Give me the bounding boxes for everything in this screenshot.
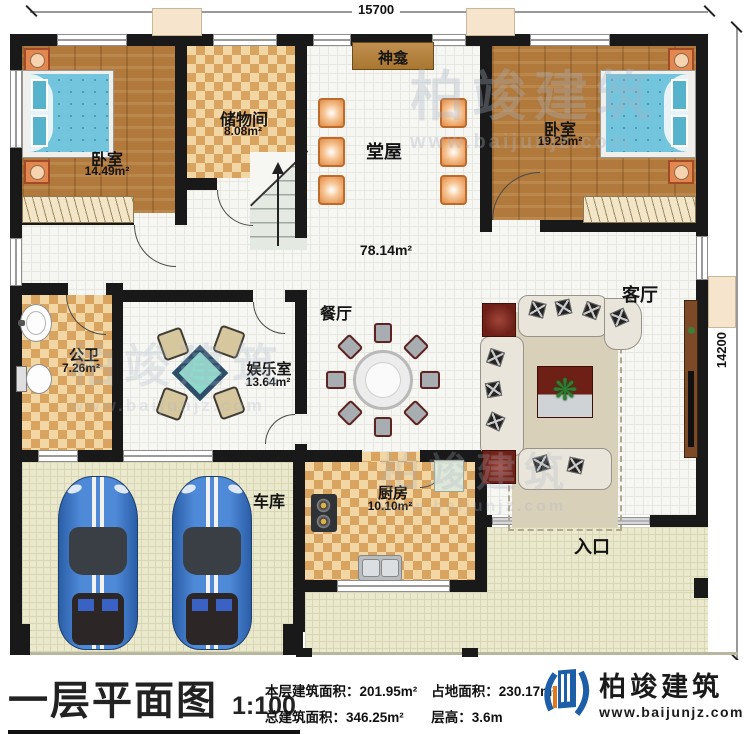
tv-icon xyxy=(688,371,694,447)
wall-storage-bottom xyxy=(187,178,217,190)
window-bedroom2-top xyxy=(530,34,610,46)
window-seat-right xyxy=(708,276,736,328)
car-icon xyxy=(172,476,252,650)
window-gameroom-bottom xyxy=(123,450,213,462)
nightstand-icon xyxy=(668,48,694,72)
hall-chair-icon xyxy=(318,137,345,167)
kitchen-sink-icon xyxy=(358,555,402,581)
room-area: 8.08m² xyxy=(224,124,262,138)
wardrobe-icon xyxy=(583,196,696,223)
bay-box-top-right xyxy=(466,8,515,36)
terrace-front-edge xyxy=(22,652,738,655)
hall-chair-icon xyxy=(440,98,467,128)
garage-post-left xyxy=(10,624,30,655)
side-table-icon xyxy=(482,303,516,337)
bay-box-top-left xyxy=(152,8,202,36)
room-label: 车库 xyxy=(253,488,285,512)
room-label: 入口 xyxy=(574,533,610,559)
stat-floor-height: 层高：3.6m xyxy=(431,706,556,726)
side-table-icon xyxy=(482,450,516,484)
room-label: 客厅 xyxy=(622,281,658,307)
room-area: 14.49m² xyxy=(85,164,130,178)
window-kitchen-bottom xyxy=(337,580,450,592)
room-area: 10.10m² xyxy=(368,499,413,513)
hall-chair-icon xyxy=(318,175,345,205)
floor-plan-canvas: 15700 14200 xyxy=(0,0,750,734)
wall-gameroom-top-stub xyxy=(285,290,295,302)
nightstand-icon xyxy=(24,48,50,72)
dining-chair-icon xyxy=(326,371,346,389)
wall-gameroom-top xyxy=(123,290,253,302)
pillow-icon xyxy=(567,457,585,475)
brand-name: 柏竣建筑 xyxy=(599,665,744,704)
hall-chair-icon xyxy=(440,175,467,205)
stat-floor-area: 本层建筑面积：201.95m² xyxy=(265,680,417,700)
pillow-icon xyxy=(485,381,502,398)
plant-icon xyxy=(688,327,695,334)
wall-living-bottom xyxy=(650,515,708,527)
dining-chair-icon xyxy=(420,371,440,389)
brand-logo: 柏竣建筑 www.baijunjz.com xyxy=(541,664,744,720)
stove-icon xyxy=(311,494,337,532)
rug-icon xyxy=(512,312,618,527)
dining-chair-icon xyxy=(374,417,392,437)
window-hall-top-right xyxy=(432,34,466,46)
window-bedroom1-left xyxy=(10,70,22,148)
wall-gameroom-right xyxy=(295,290,307,414)
wall-kitchen-top-left xyxy=(305,450,362,462)
dimension-line-right xyxy=(736,28,738,662)
brand-logo-icon xyxy=(541,664,591,720)
plan-title-group: 一层平面图 1:100 xyxy=(8,668,300,734)
wall-bedroom2-left xyxy=(480,46,492,232)
room-area: 78.14m² xyxy=(360,242,412,258)
nightstand-icon xyxy=(24,160,50,184)
bed-icon xyxy=(22,70,114,158)
title-block: 一层平面图 1:100 本层建筑面积：201.95m² 占地面积：230.17m… xyxy=(0,660,750,734)
room-label: 餐厅 xyxy=(320,300,352,324)
room-area: 13.64m² xyxy=(246,375,291,389)
bed-icon xyxy=(600,70,696,158)
wall-living-bottom-stub xyxy=(480,515,492,527)
nightstand-icon xyxy=(668,160,694,184)
window-living-right xyxy=(696,236,708,280)
window-hall-top-left xyxy=(313,34,351,46)
kitchen-cabinet-icon xyxy=(434,460,464,492)
kitchen-pass-floor xyxy=(362,452,420,462)
stair-arrowhead-icon xyxy=(272,162,284,174)
window-storage-top xyxy=(213,34,277,46)
window-corridor-left xyxy=(10,238,22,286)
coffee-table-icon: ❋ xyxy=(537,366,593,418)
dining-chair-icon xyxy=(374,323,392,343)
toilet-icon xyxy=(16,362,54,396)
terrace-post-a xyxy=(296,648,312,657)
wall-bathroom-gameroom-divider xyxy=(112,283,123,462)
terrace-post-right xyxy=(694,578,708,598)
plant-icon: ❋ xyxy=(552,376,577,406)
pillow-icon xyxy=(555,299,573,317)
dining-table-icon xyxy=(353,350,413,410)
sink-icon xyxy=(20,304,52,342)
hall-chair-icon xyxy=(440,137,467,167)
dimension-right-value: 14200 xyxy=(714,328,729,372)
room-label: 神龛 xyxy=(378,47,408,68)
stat-land-area: 占地面积：230.17m² xyxy=(431,680,556,700)
wall-garage-kitchen-divider xyxy=(293,450,305,632)
room-label: 堂屋 xyxy=(366,138,402,164)
sofa-icon xyxy=(518,448,612,490)
terrace-post-b xyxy=(462,648,478,657)
hall-chair-icon xyxy=(318,98,345,128)
room-area: 7.26m² xyxy=(62,361,100,375)
window-bedroom1-top xyxy=(57,34,127,46)
wardrobe-icon xyxy=(22,196,134,223)
terrace-floor xyxy=(305,592,708,655)
tv-cabinet-icon xyxy=(684,300,698,458)
wall-storage-right xyxy=(295,46,307,238)
window-bathroom-bottom xyxy=(38,450,78,462)
car-icon xyxy=(58,476,138,650)
wall-bedroom2-bottom-stub xyxy=(480,220,492,232)
wall-bedroom1-right xyxy=(175,46,187,225)
room-area: 19.25m² xyxy=(538,134,583,148)
stair-direction-arrow xyxy=(277,172,279,246)
plan-stats: 本层建筑面积：201.95m² 占地面积：230.17m² 总建筑面积：346.… xyxy=(265,680,557,726)
stat-total-area: 总建筑面积：346.25m² xyxy=(265,706,417,726)
dimension-top-value: 15700 xyxy=(352,2,400,17)
brand-url: www.baijunjz.com xyxy=(599,704,744,720)
plan-title: 一层平面图 xyxy=(8,668,218,726)
